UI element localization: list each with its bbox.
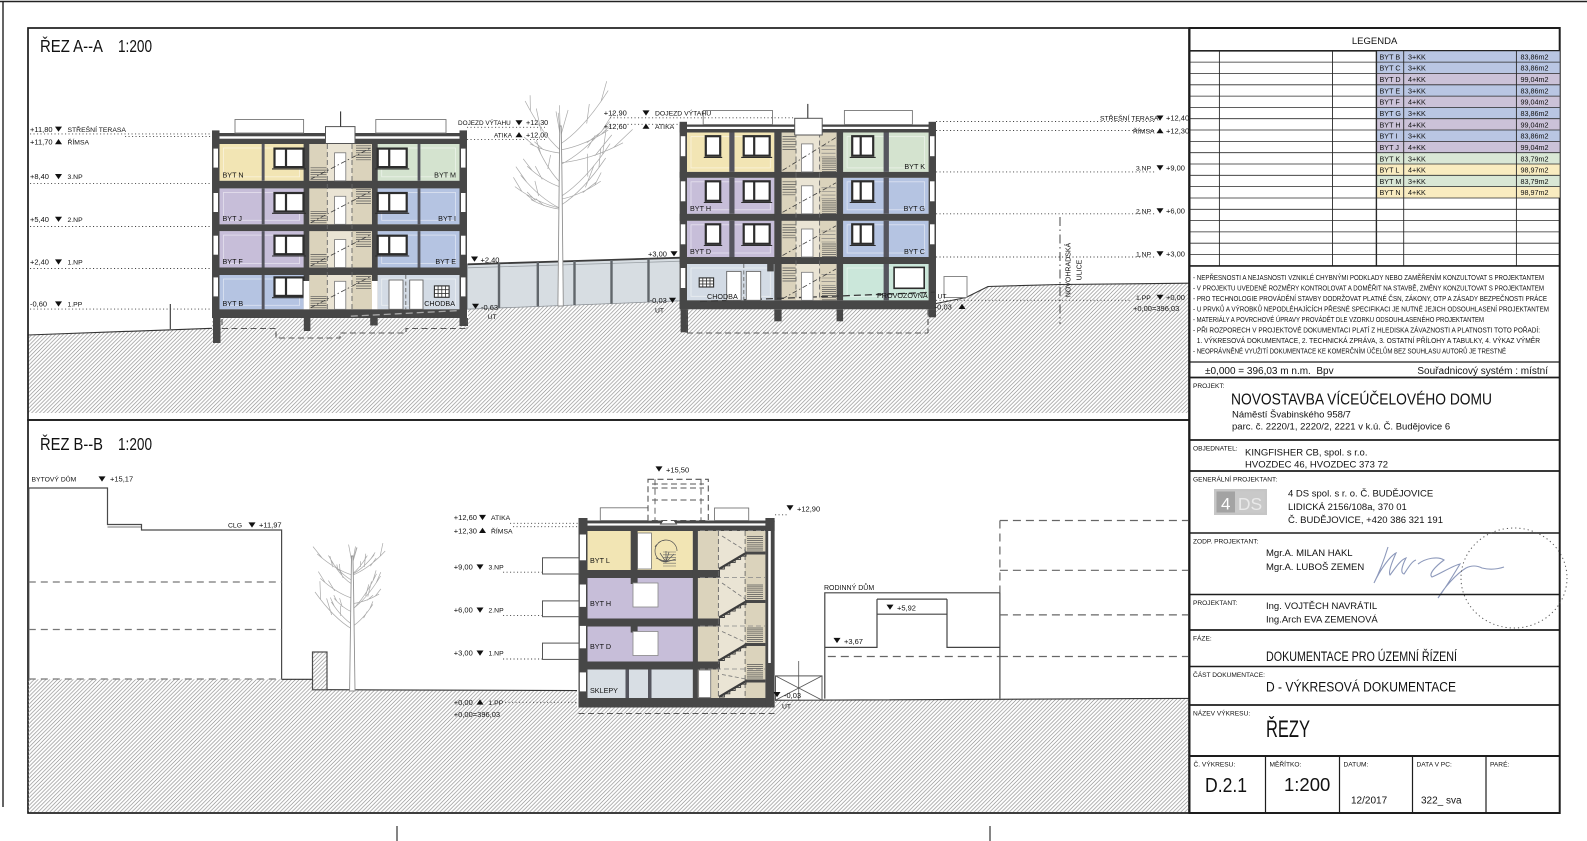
svg-text:+2,40: +2,40 bbox=[30, 258, 49, 267]
svg-text:DS: DS bbox=[1238, 494, 1262, 514]
svg-text:- PRO TECHNOLOGIE PROVÁDĚNÍ ST: - PRO TECHNOLOGIE PROVÁDĚNÍ STAVBY DODRŽ… bbox=[1193, 294, 1547, 303]
svg-text:KINGFISHER CB, spol. s r.o.: KINGFISHER CB, spol. s r.o. bbox=[1245, 448, 1367, 459]
svg-text:ŘÍMSA: ŘÍMSA bbox=[1133, 127, 1155, 136]
svg-text:ČÁST DOKUMENTACE:: ČÁST DOKUMENTACE: bbox=[1193, 670, 1265, 679]
svg-text:ATIKA: ATIKA bbox=[655, 124, 675, 131]
svg-text:99,04m2: 99,04m2 bbox=[1521, 75, 1549, 84]
svg-text:FÁZE:: FÁZE: bbox=[1193, 634, 1212, 643]
svg-text:98,97m2: 98,97m2 bbox=[1521, 188, 1549, 197]
svg-text:BYT D: BYT D bbox=[590, 642, 611, 651]
svg-text:+12,90: +12,90 bbox=[604, 109, 627, 118]
svg-text:1.NP: 1.NP bbox=[1136, 251, 1152, 258]
svg-text:1:200: 1:200 bbox=[118, 434, 152, 454]
svg-text:UT: UT bbox=[938, 294, 947, 301]
svg-text:BYT E: BYT E bbox=[1380, 86, 1401, 95]
svg-text:BYT H: BYT H bbox=[1380, 120, 1401, 129]
svg-text:DOJEZD VÝTAHU: DOJEZD VÝTAHU bbox=[458, 118, 511, 127]
svg-text:BYTOVÝ DŮM: BYTOVÝ DŮM bbox=[32, 475, 77, 484]
svg-text:- NEPŘESNOSTI A NEJASNOSTI VZN: - NEPŘESNOSTI A NEJASNOSTI VZNIKLÉ CHYBN… bbox=[1193, 273, 1544, 282]
svg-text:+0,00=396,03: +0,00=396,03 bbox=[1133, 304, 1179, 313]
svg-text:Č. BUDĚJOVICE, +420 386 321 19: Č. BUDĚJOVICE, +420 386 321 191 bbox=[1288, 515, 1443, 526]
svg-text:+8,40: +8,40 bbox=[30, 172, 49, 181]
svg-text:BYT F: BYT F bbox=[223, 257, 244, 266]
svg-text:3+KK: 3+KK bbox=[1408, 132, 1426, 141]
svg-text:2.NP: 2.NP bbox=[1136, 208, 1152, 215]
svg-text:+12,30: +12,30 bbox=[454, 526, 477, 535]
svg-text:NOVOSTAVBA VÍCEÚČELOVÉHO DOMU: NOVOSTAVBA VÍCEÚČELOVÉHO DOMU bbox=[1231, 392, 1492, 409]
svg-text:+12,60: +12,60 bbox=[454, 513, 477, 522]
svg-text:-0,03: -0,03 bbox=[784, 691, 801, 700]
svg-text:4+KK: 4+KK bbox=[1408, 120, 1426, 129]
svg-text:83,79m2: 83,79m2 bbox=[1521, 154, 1549, 163]
svg-text:83,86m2: 83,86m2 bbox=[1521, 64, 1549, 73]
svg-text:1.NP: 1.NP bbox=[489, 651, 505, 658]
svg-text:GENERÁLNÍ PROJEKTANT:: GENERÁLNÍ PROJEKTANT: bbox=[1193, 475, 1277, 484]
svg-text:+3,67: +3,67 bbox=[844, 637, 863, 646]
svg-text:+11,70: +11,70 bbox=[30, 138, 53, 147]
svg-text:HVOZDEC 46, HVOZDEC 373 72: HVOZDEC 46, HVOZDEC 373 72 bbox=[1245, 460, 1388, 471]
svg-text:DOJEZD VÝTAHU: DOJEZD VÝTAHU bbox=[655, 109, 711, 118]
svg-text:3+KK: 3+KK bbox=[1408, 177, 1426, 186]
svg-text:1.NP: 1.NP bbox=[68, 260, 84, 267]
svg-text:LIDICKÁ 2156/108a, 370 01: LIDICKÁ 2156/108a, 370 01 bbox=[1288, 502, 1407, 513]
svg-text:1.PP: 1.PP bbox=[68, 302, 83, 309]
svg-text:NOVOHRADSKÁ: NOVOHRADSKÁ bbox=[1064, 242, 1073, 297]
svg-text:3+KK: 3+KK bbox=[1408, 109, 1426, 118]
svg-text:83,79m2: 83,79m2 bbox=[1521, 177, 1549, 186]
svg-text:-0,03: -0,03 bbox=[935, 302, 952, 311]
svg-text:BYT D: BYT D bbox=[1380, 75, 1401, 84]
svg-text:+3,00: +3,00 bbox=[1166, 249, 1185, 258]
svg-text:BYT J: BYT J bbox=[223, 214, 243, 223]
svg-text:99,04m2: 99,04m2 bbox=[1521, 98, 1549, 107]
svg-text:CLG: CLG bbox=[228, 523, 242, 530]
svg-text:2.NP: 2.NP bbox=[489, 608, 505, 615]
svg-text:Ing.Arch EVA ZEMENOVÁ: Ing.Arch EVA ZEMENOVÁ bbox=[1266, 615, 1378, 626]
svg-text:+12,30: +12,30 bbox=[1166, 127, 1189, 136]
svg-text:UT: UT bbox=[488, 314, 497, 321]
svg-text:PROVOZOVNA: PROVOZOVNA bbox=[877, 291, 928, 300]
svg-text:+11,97: +11,97 bbox=[259, 521, 282, 530]
svg-text:MĚŘÍTKO:: MĚŘÍTKO: bbox=[1270, 760, 1302, 769]
svg-text:- MATERIÁLY A POVRCHOVÉ ÚPRAVY: - MATERIÁLY A POVRCHOVÉ ÚPRAVY PROVÁDĚT … bbox=[1193, 315, 1484, 324]
svg-text:+15,17: +15,17 bbox=[110, 475, 133, 484]
svg-text:99,04m2: 99,04m2 bbox=[1521, 143, 1549, 152]
svg-text:4+KK: 4+KK bbox=[1408, 143, 1426, 152]
svg-text:Mgr.A. MILAN HAKL: Mgr.A. MILAN HAKL bbox=[1266, 548, 1353, 559]
svg-text:83,86m2: 83,86m2 bbox=[1521, 109, 1549, 118]
svg-text:BYT E: BYT E bbox=[435, 257, 456, 266]
svg-text:LEGENDA: LEGENDA bbox=[1352, 36, 1398, 47]
svg-text:STŘEŠNÍ TERASA: STŘEŠNÍ TERASA bbox=[68, 125, 127, 134]
svg-text:ŘEZ B--B: ŘEZ B--B bbox=[40, 434, 103, 454]
svg-text:1:200: 1:200 bbox=[118, 36, 152, 56]
svg-text:SKLEPY: SKLEPY bbox=[590, 686, 618, 695]
svg-text:- U PRVKŮ A VÝROBKŮ NEPODLÉHAJ: - U PRVKŮ A VÝROBKŮ NEPODLÉHAJÍCÍCH PŘES… bbox=[1193, 304, 1549, 313]
svg-text:+15,50: +15,50 bbox=[666, 466, 689, 475]
svg-text:DATUM:: DATUM: bbox=[1344, 762, 1369, 769]
svg-text:+9,00: +9,00 bbox=[454, 563, 473, 572]
svg-text:BYT G: BYT G bbox=[904, 204, 926, 213]
svg-text:+12,90: +12,90 bbox=[797, 504, 820, 513]
svg-text:1.PP: 1.PP bbox=[1136, 295, 1151, 302]
svg-text:3+KK: 3+KK bbox=[1408, 52, 1426, 61]
svg-text:BYT L: BYT L bbox=[1380, 166, 1400, 175]
svg-text:1:200: 1:200 bbox=[1284, 774, 1330, 795]
svg-text:+6,00: +6,00 bbox=[454, 606, 473, 615]
svg-text:1.PP: 1.PP bbox=[489, 700, 504, 707]
svg-text:4: 4 bbox=[1221, 495, 1230, 514]
svg-text:BYT K: BYT K bbox=[1380, 154, 1401, 163]
svg-text:RODINNÝ DŮM: RODINNÝ DŮM bbox=[824, 583, 874, 592]
svg-text:83,86m2: 83,86m2 bbox=[1521, 86, 1549, 95]
svg-text:BYT B: BYT B bbox=[1380, 52, 1401, 61]
svg-text:OBJEDNATEL:: OBJEDNATEL: bbox=[1193, 446, 1238, 453]
svg-text:parc. č. 2220/1, 2220/2, 2221: parc. č. 2220/1, 2220/2, 2221 v k.ú. Č. … bbox=[1232, 422, 1450, 433]
svg-text:UT: UT bbox=[655, 307, 664, 314]
svg-text:4+KK: 4+KK bbox=[1408, 166, 1426, 175]
svg-text:BYT H: BYT H bbox=[590, 599, 611, 608]
svg-text:DATA V PC:: DATA V PC: bbox=[1417, 762, 1452, 769]
svg-text:BYT K: BYT K bbox=[904, 162, 925, 171]
svg-text:- V PROJEKTU UVEDENÉ ROZMĚRY K: - V PROJEKTU UVEDENÉ ROZMĚRY KONTROLOVAT… bbox=[1193, 283, 1544, 292]
svg-text:+12,00: +12,00 bbox=[526, 131, 548, 140]
svg-text:4 DS spol. s r. o. Č. BUDĚJOVI: 4 DS spol. s r. o. Č. BUDĚJOVICE bbox=[1288, 489, 1433, 500]
svg-text:+11,80: +11,80 bbox=[30, 125, 53, 134]
svg-text:- PŘI ROZPORECH V PROJEKTOVÉ D: - PŘI ROZPORECH V PROJEKTOVÉ DOKUMENTACI… bbox=[1193, 326, 1540, 335]
svg-text:DOKUMENTACE PRO ÚZEMNÍ ŘÍZENÍ: DOKUMENTACE PRO ÚZEMNÍ ŘÍZENÍ bbox=[1266, 649, 1457, 664]
svg-text:BYT I: BYT I bbox=[438, 214, 456, 223]
svg-text:ŘÍMSA: ŘÍMSA bbox=[68, 138, 90, 147]
svg-text:4+KK: 4+KK bbox=[1408, 98, 1426, 107]
svg-text:+0,00=396,03: +0,00=396,03 bbox=[454, 710, 500, 719]
svg-text:BYT M: BYT M bbox=[1380, 177, 1402, 186]
svg-text:322_ sva: 322_ sva bbox=[1421, 796, 1462, 807]
svg-text:CHODBA: CHODBA bbox=[707, 292, 738, 301]
svg-text:ŘEZY: ŘEZY bbox=[1266, 716, 1310, 743]
svg-text:- NEOPRÁVNĚNÉ VYUŽITÍ DOKUMENT: - NEOPRÁVNĚNÉ VYUŽITÍ DOKUMENTACE KE KOM… bbox=[1193, 347, 1506, 356]
svg-text:3+KK: 3+KK bbox=[1408, 154, 1426, 163]
svg-text:83,86m2: 83,86m2 bbox=[1521, 132, 1549, 141]
svg-text:-0,63: -0,63 bbox=[481, 303, 498, 312]
svg-text:BYT J: BYT J bbox=[1380, 143, 1400, 152]
svg-text:BYT B: BYT B bbox=[223, 299, 244, 308]
svg-text:Ing. VOJTĚCH NAVRÁTIL: Ing. VOJTĚCH NAVRÁTIL bbox=[1266, 601, 1377, 612]
svg-text:ZODP. PROJEKTANT:: ZODP. PROJEKTANT: bbox=[1193, 539, 1259, 546]
svg-text:99,04m2: 99,04m2 bbox=[1521, 120, 1549, 129]
svg-text:4+KK: 4+KK bbox=[1408, 188, 1426, 197]
svg-text:ŘEZ A--A: ŘEZ A--A bbox=[40, 36, 103, 56]
svg-text:BYT N: BYT N bbox=[1380, 188, 1401, 197]
svg-text:NÁZEV VÝKRESU:: NÁZEV VÝKRESU: bbox=[1193, 709, 1250, 718]
svg-text:BYT L: BYT L bbox=[590, 556, 610, 565]
svg-text:+12,60: +12,60 bbox=[604, 122, 627, 131]
svg-text:3+KK: 3+KK bbox=[1408, 86, 1426, 95]
svg-text:+0,00: +0,00 bbox=[454, 698, 473, 707]
svg-text:ATIKA: ATIKA bbox=[491, 515, 511, 522]
svg-text:+12,40: +12,40 bbox=[1166, 114, 1189, 123]
svg-text:3+KK: 3+KK bbox=[1408, 64, 1426, 73]
svg-text:BYT M: BYT M bbox=[434, 171, 456, 180]
svg-text:+3,00: +3,00 bbox=[454, 649, 473, 658]
svg-text:ŘÍMSA: ŘÍMSA bbox=[491, 526, 513, 535]
svg-text:Náměstí Švabinského 958/7: Náměstí Švabinského 958/7 bbox=[1232, 410, 1351, 421]
svg-text:PROJEKT:: PROJEKT: bbox=[1193, 383, 1225, 390]
svg-text:3.NP: 3.NP bbox=[489, 565, 505, 572]
svg-text:BYT G: BYT G bbox=[1380, 109, 1402, 118]
svg-text:1. VÝKRESOVÁ DOKUMENTACE, 2. T: 1. VÝKRESOVÁ DOKUMENTACE, 2. TECHNICKÁ Z… bbox=[1193, 336, 1540, 345]
svg-text:±0,000 = 396,03 m n.m. Bpv: ±0,000 = 396,03 m n.m. Bpv bbox=[1205, 366, 1334, 377]
svg-text:-0,03: -0,03 bbox=[650, 296, 667, 305]
svg-text:98,97m2: 98,97m2 bbox=[1521, 166, 1549, 175]
svg-text:ULICE: ULICE bbox=[1077, 259, 1084, 280]
svg-text:Souřadnicový systém : místní: Souřadnicový systém : místní bbox=[1417, 366, 1548, 377]
svg-text:+5,92: +5,92 bbox=[897, 604, 916, 613]
svg-text:BYT D: BYT D bbox=[690, 247, 711, 256]
svg-text:Č. VÝKRESU:: Č. VÝKRESU: bbox=[1194, 760, 1236, 769]
svg-text:BYT C: BYT C bbox=[904, 247, 925, 256]
svg-text:CHODBA: CHODBA bbox=[424, 299, 455, 308]
svg-text:BYT I: BYT I bbox=[1380, 132, 1398, 141]
svg-text:D - VÝKRESOVÁ DOKUMENTACE: D - VÝKRESOVÁ DOKUMENTACE bbox=[1266, 680, 1456, 695]
svg-text:D.2.1: D.2.1 bbox=[1205, 775, 1247, 797]
svg-text:2.NP: 2.NP bbox=[68, 217, 84, 224]
svg-text:Mgr.A. LUBOŠ ZEMEN: Mgr.A. LUBOŠ ZEMEN bbox=[1266, 562, 1364, 573]
svg-text:83,86m2: 83,86m2 bbox=[1521, 52, 1549, 61]
svg-text:BYT C: BYT C bbox=[1380, 64, 1401, 73]
svg-text:4+KK: 4+KK bbox=[1408, 75, 1426, 84]
svg-text:UT: UT bbox=[782, 704, 791, 711]
svg-text:+6,00: +6,00 bbox=[1166, 206, 1185, 215]
svg-text:PARÉ:: PARÉ: bbox=[1490, 760, 1509, 769]
svg-text:-0,60: -0,60 bbox=[30, 300, 47, 309]
svg-text:12/2017: 12/2017 bbox=[1351, 796, 1388, 807]
svg-text:+3,00: +3,00 bbox=[648, 249, 667, 258]
svg-text:BYT F: BYT F bbox=[1380, 98, 1401, 107]
svg-text:3.NP: 3.NP bbox=[68, 174, 84, 181]
svg-text:+5,40: +5,40 bbox=[30, 215, 49, 224]
svg-text:BYT N: BYT N bbox=[223, 171, 244, 180]
svg-text:3.NP: 3.NP bbox=[1136, 165, 1152, 172]
svg-text:ATIKA: ATIKA bbox=[494, 133, 513, 140]
svg-text:BYT H: BYT H bbox=[690, 204, 711, 213]
svg-text:PROJEKTANT:: PROJEKTANT: bbox=[1193, 600, 1237, 607]
svg-text:+9,00: +9,00 bbox=[1166, 163, 1185, 172]
svg-text:+0,00: +0,00 bbox=[1166, 293, 1185, 302]
